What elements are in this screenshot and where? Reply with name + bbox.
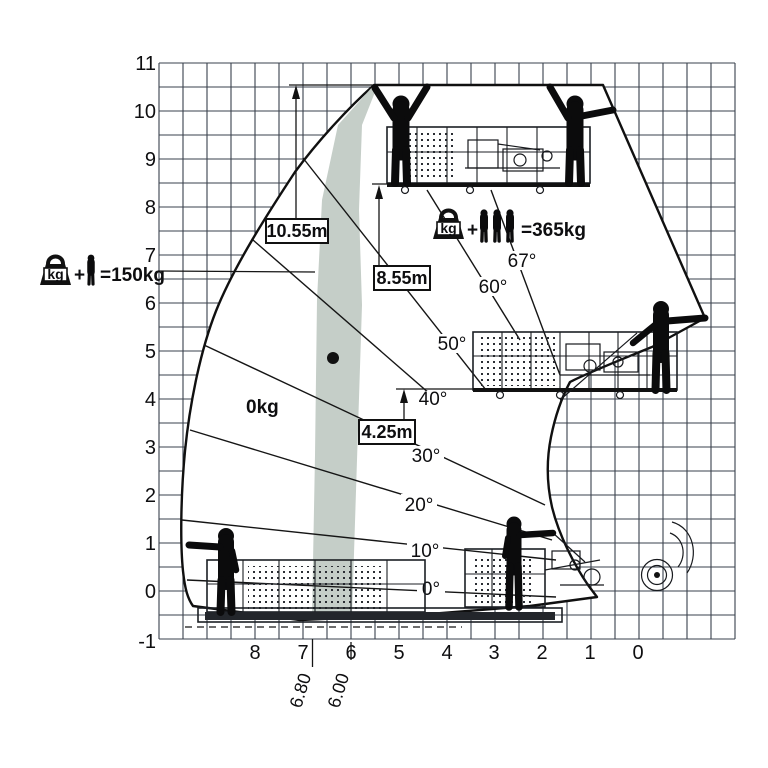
y-axis-label: 6 <box>145 293 156 315</box>
x-axis-label: 5 <box>393 642 404 664</box>
turntable-circles-icon <box>642 522 694 591</box>
range-diagram: 11 10 9 8 7 6 5 4 3 2 1 0 -1 8 7 6 5 4 3… <box>0 0 768 768</box>
x-axis: 8 7 6 5 4 3 2 1 0 <box>249 642 643 664</box>
y-axis-label: 7 <box>145 245 156 267</box>
angle-label-20: 20° <box>405 495 434 516</box>
load-limit-dot <box>327 352 339 364</box>
outreach-marks: 6.80 6.00 <box>286 639 353 710</box>
load-max-value: =365kg <box>521 220 586 241</box>
x-axis-label: 2 <box>536 642 547 664</box>
y-axis-label: 1 <box>145 533 156 555</box>
x-axis-label: 4 <box>441 642 452 664</box>
dim-label-4-25: 4.25m <box>361 422 412 442</box>
y-axis-label: 3 <box>145 437 156 459</box>
working-range-diagram-page: 11 10 9 8 7 6 5 4 3 2 1 0 -1 8 7 6 5 4 3… <box>0 0 768 768</box>
angle-label-40: 40° <box>419 389 448 410</box>
y-axis-label: 10 <box>134 101 156 123</box>
x-axis-label: 8 <box>249 642 260 664</box>
outreach-label-6-00: 6.00 <box>324 671 353 710</box>
load-min-value: =150kg <box>100 265 165 286</box>
y-axis-label: 0 <box>145 581 156 603</box>
x-axis-label: 3 <box>488 642 499 664</box>
kg-icon-label: kg <box>440 220 456 236</box>
y-axis-label: 9 <box>145 149 156 171</box>
plus-sign: + <box>74 265 85 286</box>
angle-label-50: 50° <box>438 334 467 355</box>
y-axis-label: 8 <box>145 197 156 219</box>
angle-label-67: 67° <box>508 251 537 272</box>
angle-label-10: 10° <box>411 541 440 562</box>
y-axis-label: -1 <box>138 631 156 653</box>
angle-label-30: 30° <box>412 446 441 467</box>
zone-label-0kg: 0kg <box>246 397 279 418</box>
y-axis-label: 2 <box>145 485 156 507</box>
y-axis-label: 4 <box>145 389 156 411</box>
person-icon <box>88 255 95 284</box>
y-axis-label: 5 <box>145 341 156 363</box>
y-axis: 11 10 9 8 7 6 5 4 3 2 1 0 -1 <box>134 53 156 653</box>
x-axis-label: 0 <box>632 642 643 664</box>
x-axis-label: 7 <box>297 642 308 664</box>
weight-icon: kg <box>40 257 71 286</box>
dim-label-10-55: 10.55m <box>266 221 327 241</box>
plus-sign: + <box>467 220 478 241</box>
angle-label-60: 60° <box>479 277 508 298</box>
kg-icon-label: kg <box>47 266 63 282</box>
y-axis-label: 11 <box>135 53 156 75</box>
x-axis-label: 1 <box>584 642 595 664</box>
outreach-label-6-80: 6.80 <box>286 671 315 710</box>
dim-label-8-55: 8.55m <box>376 268 427 288</box>
